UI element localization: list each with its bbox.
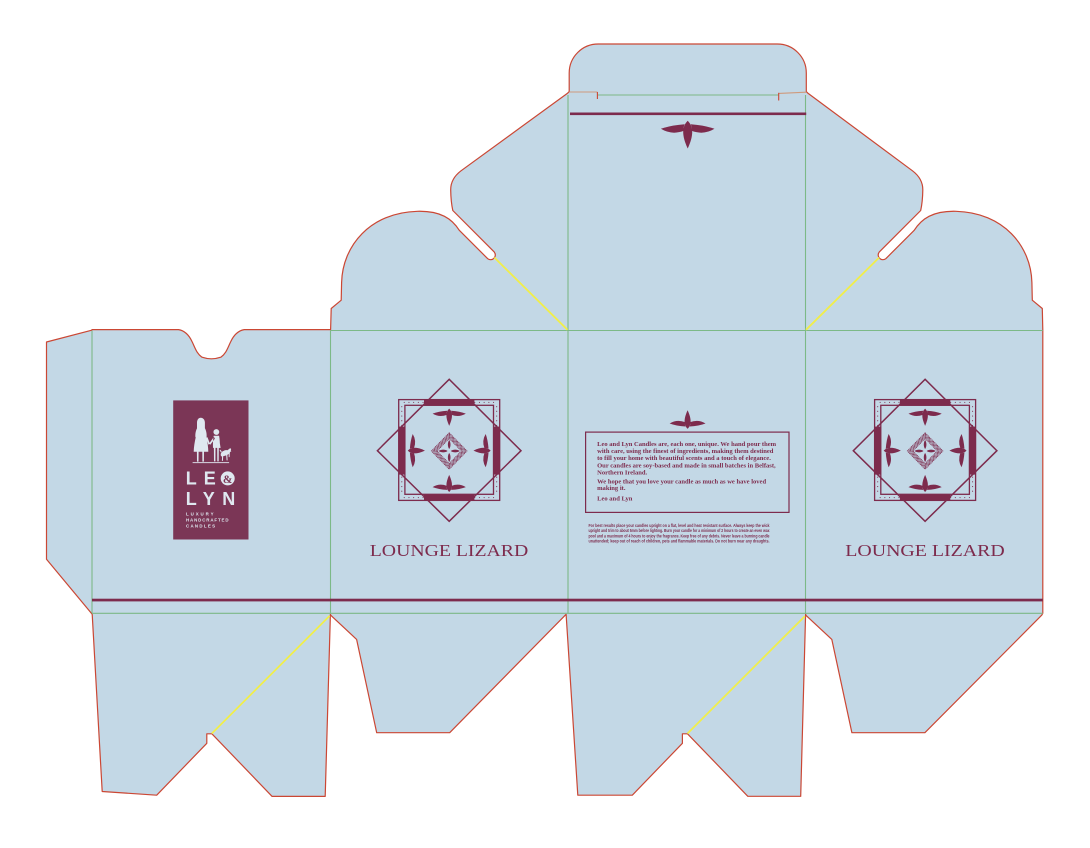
svg-text:making it.: making it.	[597, 485, 626, 492]
svg-text:LOUNGE LIZARD: LOUNGE LIZARD	[370, 541, 529, 560]
svg-text:Leo and Lyn Candles are, each: Leo and Lyn Candles are, each one, uniqu…	[597, 441, 777, 448]
svg-text:LYN: LYN	[186, 489, 236, 509]
svg-text:HANDCRAFTED: HANDCRAFTED	[186, 517, 229, 522]
svg-text:Northern Ireland.: Northern Ireland.	[597, 469, 647, 476]
svg-text:unattended; keep out of reach: unattended; keep out of reach of childre…	[589, 539, 770, 544]
svg-text:&: &	[223, 474, 233, 486]
svg-text:to fill your home with beautif: to fill your home with beautiful scents …	[597, 455, 771, 462]
svg-text:Our candles are soy-based and: Our candles are soy-based and made in sm…	[597, 462, 776, 469]
svg-text:with care, using the finest of: with care, using the finest of ingredien…	[597, 448, 774, 455]
svg-text:CANDLES: CANDLES	[186, 523, 215, 528]
svg-text:Leo and Lyn: Leo and Lyn	[597, 496, 633, 503]
svg-text:LOUNGE LIZARD: LOUNGE LIZARD	[845, 541, 1005, 560]
